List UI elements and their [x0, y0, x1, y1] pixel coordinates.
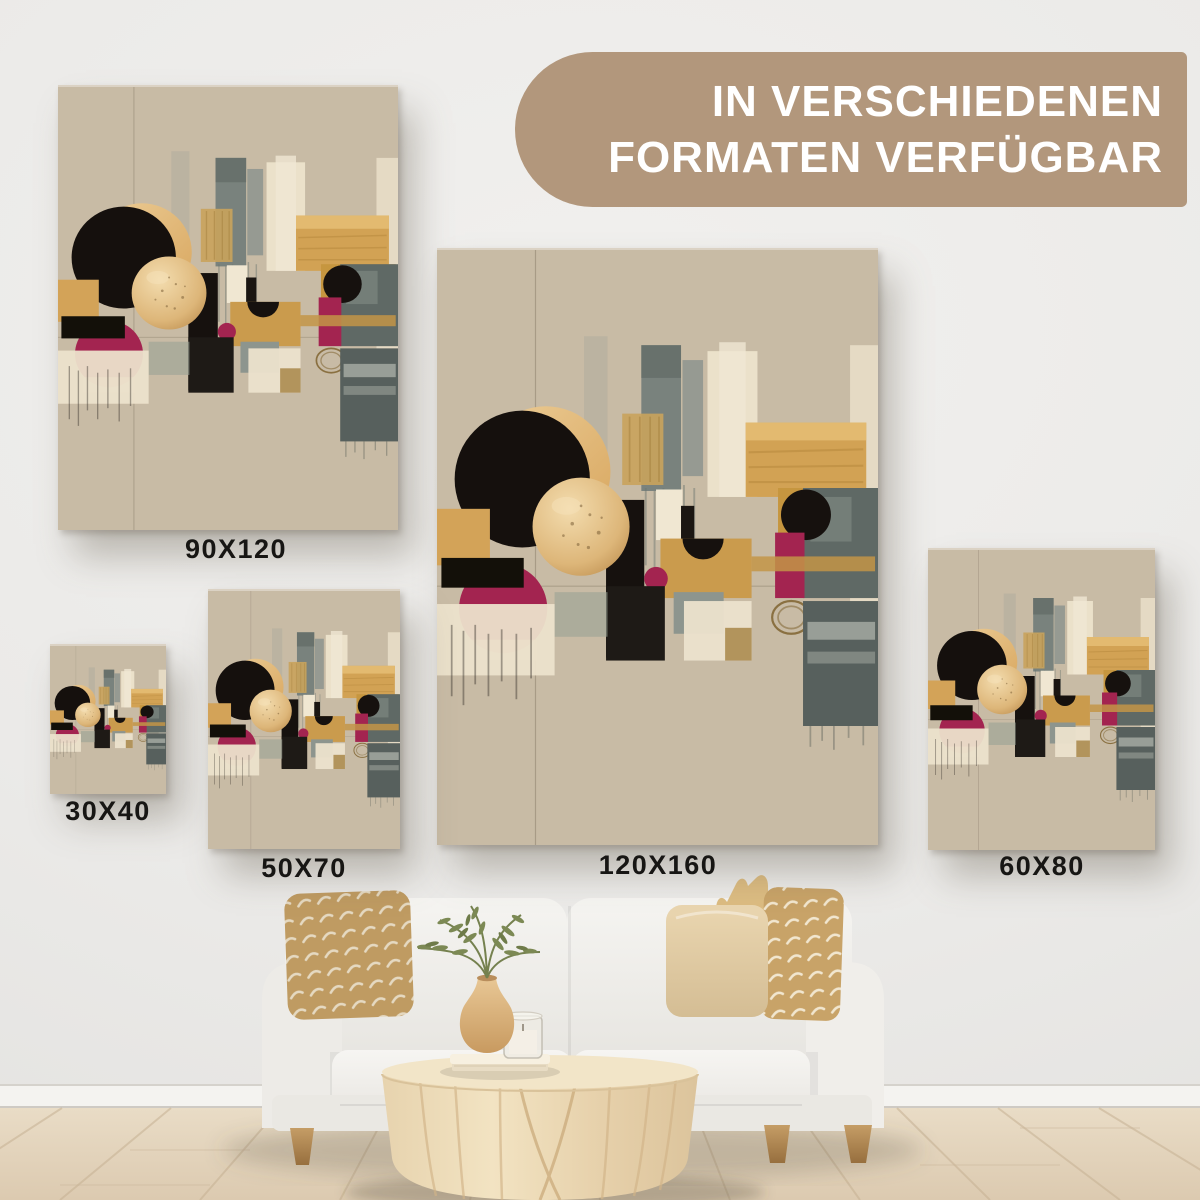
- size-label-90x120: 90X120: [185, 534, 287, 565]
- headline-line2: FORMATEN VERFÜGBAR: [608, 130, 1163, 186]
- pillow-right-chevron: [760, 887, 845, 1022]
- promo-image: 90X120 30X40 50X70 120X160 60X80 IN VERS…: [0, 0, 1200, 1200]
- canvas-print-30x40: [50, 644, 166, 794]
- canvas-print-90x120: [58, 85, 398, 530]
- canvas-print-50x70: [208, 589, 400, 849]
- size-label-120x160: 120X160: [599, 850, 718, 881]
- canvas-print-60x80: [928, 548, 1155, 850]
- size-label-30x40: 30X40: [65, 796, 151, 827]
- pillow-right-plain: [666, 905, 768, 1017]
- headline-line1: IN VERSCHIEDENEN: [712, 74, 1163, 130]
- pillow-left-chevron: [284, 890, 414, 1020]
- size-label-60x80: 60X80: [999, 851, 1085, 882]
- book: [440, 1054, 560, 1080]
- size-label-50x70: 50X70: [261, 853, 347, 884]
- canvas-print-120x160: [437, 248, 878, 845]
- headline-badge: IN VERSCHIEDENEN FORMATEN VERFÜGBAR: [515, 52, 1187, 207]
